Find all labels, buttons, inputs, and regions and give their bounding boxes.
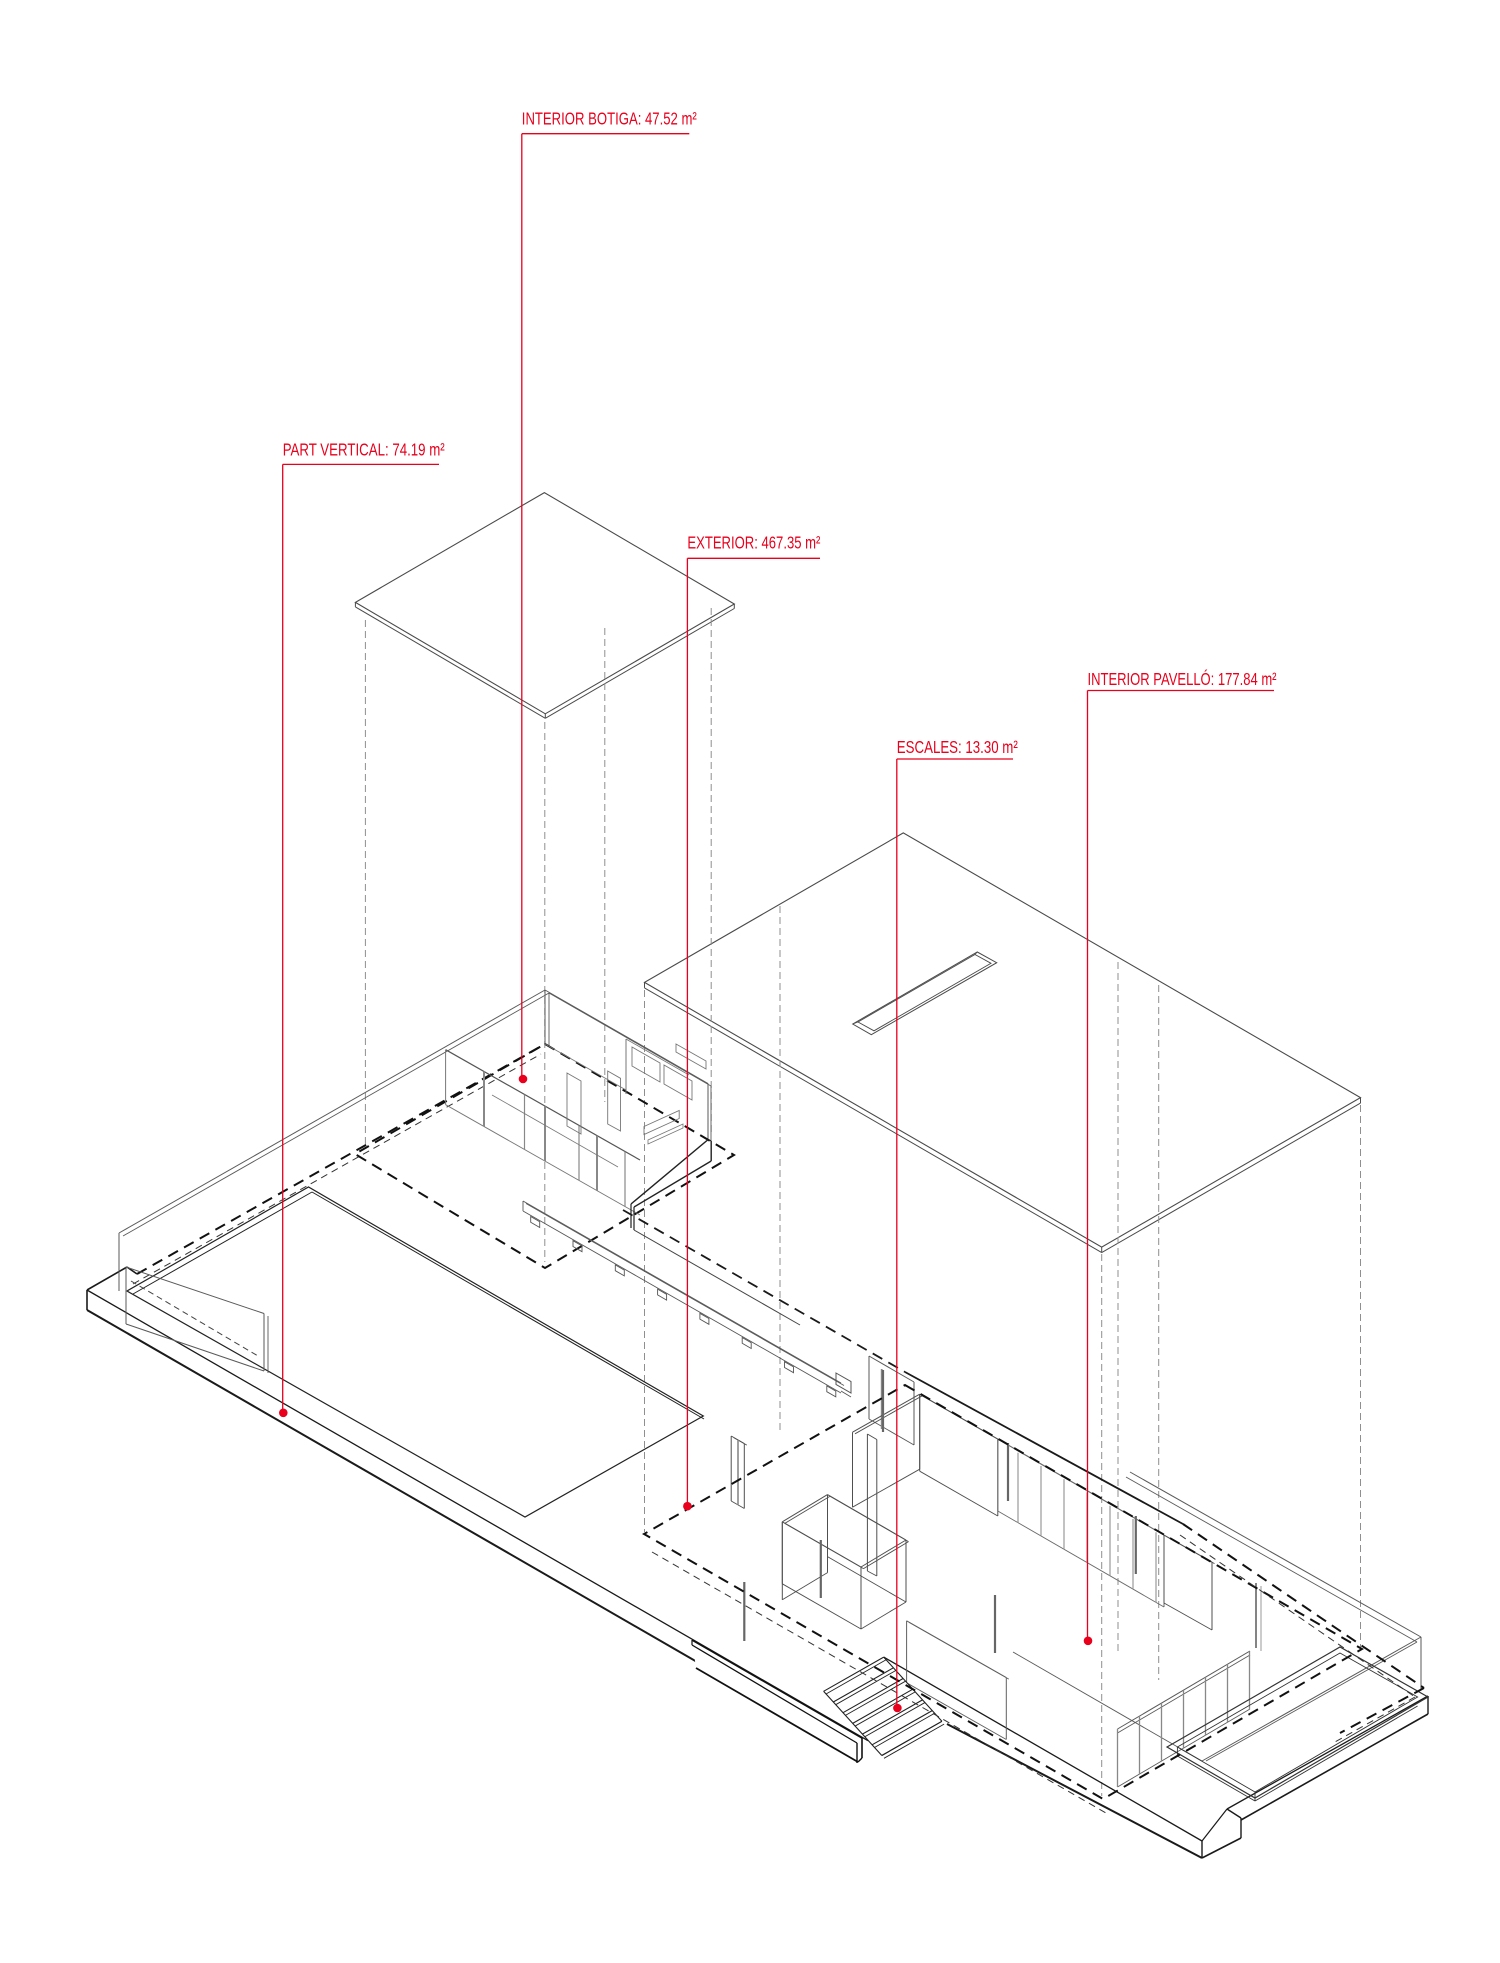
svg-text:ESCALES: 13.30 m²: ESCALES: 13.30 m² bbox=[897, 737, 1018, 757]
svg-text:INTERIOR PAVELLÓ: 177.84 m²: INTERIOR PAVELLÓ: 177.84 m² bbox=[1088, 668, 1277, 689]
svg-text:INTERIOR BOTIGA: 47.52 m²: INTERIOR BOTIGA: 47.52 m² bbox=[522, 109, 697, 129]
svg-text:PART VERTICAL: 74.19 m²: PART VERTICAL: 74.19 m² bbox=[283, 440, 445, 460]
svg-text:EXTERIOR: 467.35 m²: EXTERIOR: 467.35 m² bbox=[687, 533, 820, 553]
